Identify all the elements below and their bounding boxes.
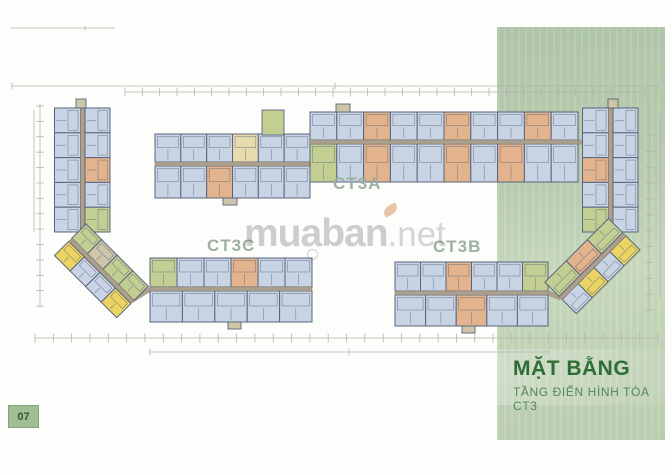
wing-ct3c bbox=[150, 258, 312, 322]
brochure-page: CT3ACT3CCT3B muaban.net MẶT BẰNG TẦNG ĐI… bbox=[0, 0, 672, 475]
wing-tower-right bbox=[583, 108, 639, 232]
corridor bbox=[310, 140, 578, 144]
wing-ct3a-left bbox=[155, 134, 310, 198]
plan-service-block bbox=[262, 110, 284, 135]
plan-service-block bbox=[462, 326, 475, 333]
wing-ct3b bbox=[395, 262, 548, 326]
plan-service-block bbox=[76, 99, 86, 108]
corridor bbox=[395, 291, 548, 295]
corridor bbox=[150, 287, 312, 291]
corridor bbox=[609, 108, 613, 232]
panel-subtitle: TẦNG ĐIỂN HÌNH TÒA CT3 bbox=[513, 385, 672, 413]
wing-label: CT3B bbox=[433, 237, 481, 256]
wing-label: CT3A bbox=[333, 174, 381, 193]
plan-service-block bbox=[228, 322, 241, 329]
plan-service-block bbox=[223, 198, 237, 205]
wing-tower-left bbox=[55, 108, 111, 232]
wing-diag-left bbox=[55, 224, 149, 318]
page-number-badge: 07 bbox=[8, 405, 39, 428]
panel-title: MẶT BẰNG bbox=[513, 357, 672, 381]
corridor bbox=[155, 162, 310, 166]
corridor bbox=[81, 108, 85, 232]
plan-service-block bbox=[336, 104, 350, 112]
wing-label: CT3C bbox=[207, 236, 255, 255]
wing-ct3a-right bbox=[310, 112, 578, 182]
panel-text-block: MẶT BẰNG TẦNG ĐIỂN HÌNH TÒA CT3 bbox=[513, 357, 672, 413]
plan-service-block bbox=[608, 99, 618, 108]
